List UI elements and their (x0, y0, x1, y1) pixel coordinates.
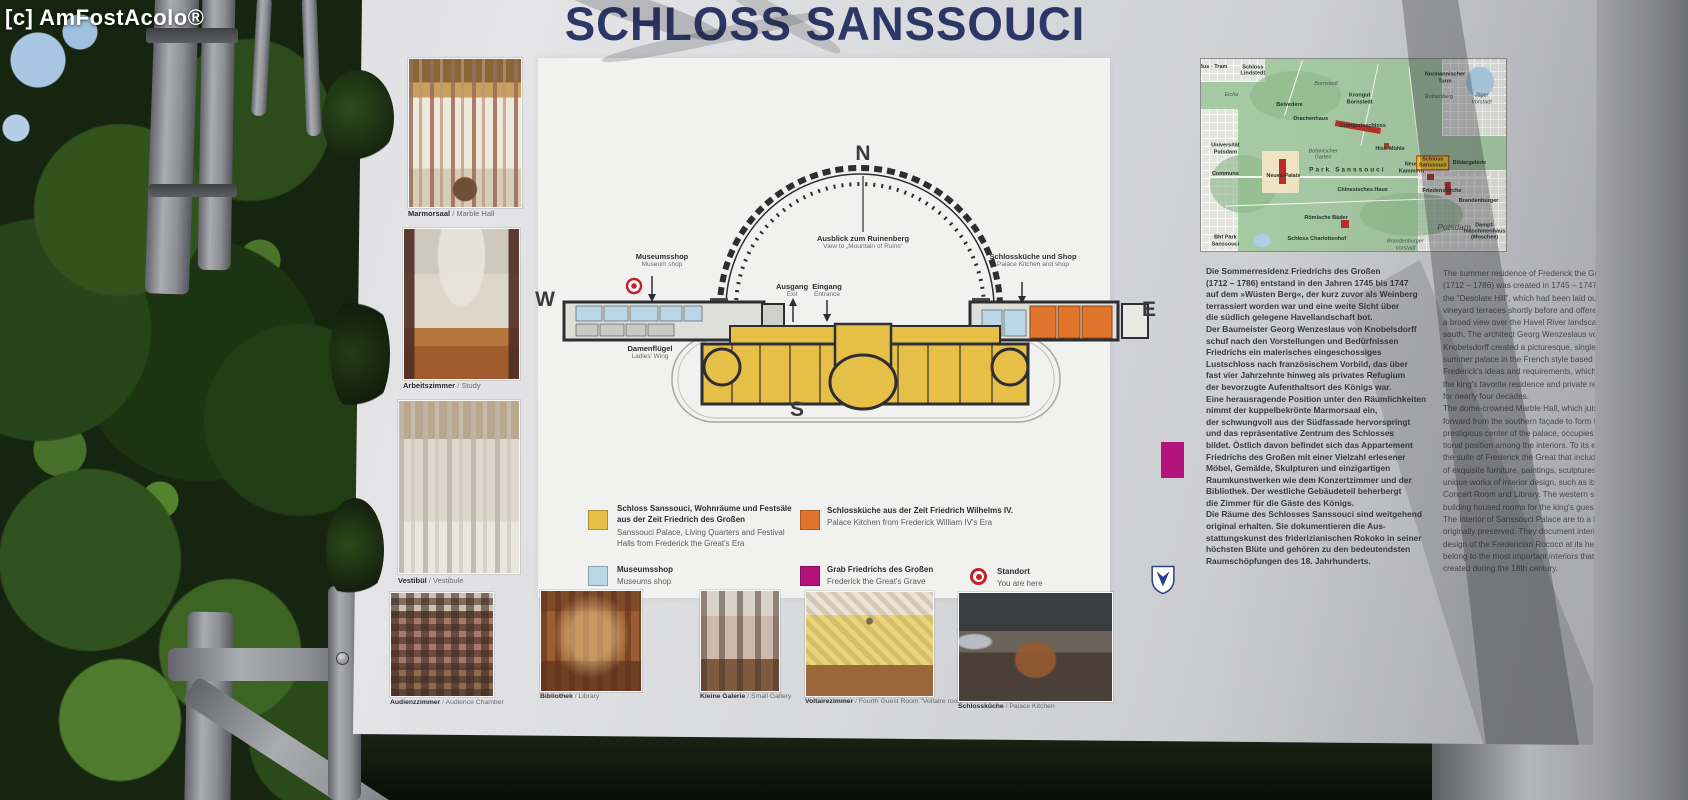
label-museum-shop: Museumsshop Museum shop (592, 252, 732, 268)
map-label: Drachenhaus (1293, 115, 1328, 121)
map-label: Dampf- maschinenhaus (Moschee) (1464, 222, 1506, 241)
watermark: [c] AmFostAcolo® (5, 5, 204, 31)
map-label: Chinesisches Haus (1337, 186, 1387, 192)
park-map: Bus · Tram Schloss Lindstedt Eiche Borns… (1200, 58, 1507, 252)
compass-south: S (782, 398, 812, 422)
map-label: Bhf Park Sanssouci (1212, 235, 1240, 248)
floor-plan: N S W E Ausblick zum Ruinenberg View to … (530, 140, 1170, 490)
legend-kitchen-de: Schlossküche aus der Zeit Friedrich Wilh… (827, 505, 1013, 516)
caption-audienzzimmer: Audienzzimmer / Audience Chamber (390, 699, 504, 706)
label-view-to-ruinenberg: Ausblick zum Ruinenberg View to „Mountai… (763, 234, 963, 250)
compass-west: W (530, 288, 560, 312)
map-label: Bornstedt (1314, 81, 1338, 87)
foliage-edge (322, 70, 394, 166)
map-label: Römische Bäder (1304, 215, 1347, 221)
map-label: Belvedere (1276, 102, 1302, 108)
caption-marmorsaal: Marmorsaal / Marble Hall (408, 209, 494, 218)
foliage-edge (326, 498, 384, 602)
grave-marker (1161, 442, 1184, 478)
photo-vestibuel (398, 400, 520, 574)
legend-swatch-shop (588, 566, 608, 586)
map-label: Eiche (1225, 92, 1239, 98)
map-label: Bus · Tram (1200, 64, 1227, 70)
photo-schlosskueche (958, 592, 1113, 702)
map-label: Schloss Lindstedt (1240, 64, 1265, 77)
map-main-avenue (1210, 176, 1491, 178)
map-label: Communs (1212, 171, 1239, 177)
map-label: Botanischer Garten (1308, 149, 1337, 162)
legend-palace-de: Schloss Sanssouci, Wohnräume und Festsäl… (617, 503, 792, 525)
board-title: SCHLOSS SANSSOUCI (547, 0, 1104, 51)
map-label: Krongut Bornstedt (1347, 93, 1373, 106)
map-label-park-sanssouci: Park Sanssouci (1309, 167, 1385, 174)
pole-clamp (149, 184, 237, 197)
legend-swatch-kitchen (800, 510, 820, 530)
map-legend: Schloss Sanssouci, Wohnräume und Festsäl… (585, 500, 1110, 600)
photo-arbeitszimmer (403, 228, 520, 380)
map-label: Bildergalerie (1453, 160, 1486, 166)
info-text-german: Die Sommerresidenz Friedrichs des Großen… (1206, 266, 1426, 567)
map-label: Neues Palais (1266, 173, 1300, 179)
label-palace-kitchen: Schlossküche und Shop Palace Kitchen and… (953, 252, 1113, 268)
map-label: Ruinenberg (1425, 94, 1453, 100)
floor-plan-drawing (530, 140, 1170, 490)
compass-north: N (848, 142, 878, 166)
legend-palace-en: Sanssouci Palace, Living Quarters and Fe… (617, 527, 785, 549)
map-label: Schloss Charlottenhof (1288, 236, 1347, 242)
legend-grave-de: Grab Friedrichs des Großen (827, 564, 933, 575)
photo-voltairezimmer (805, 591, 934, 697)
legend-swatch-palace (588, 510, 608, 530)
legend-swatch-grave (800, 566, 820, 586)
spsg-logo (1150, 564, 1176, 596)
caption-arbeitszimmer: Arbeitszimmer / Study (403, 381, 481, 390)
map-label: Jäger Vorstadt (1471, 93, 1491, 106)
foliage-edge (330, 292, 390, 416)
caption-bibliothek: Bibliothek / Library (540, 693, 599, 700)
legend-standort-en: You are here (997, 578, 1043, 589)
map-label: Orangerieschloss (1339, 123, 1385, 129)
legend-shop-de: Museumsshop (617, 564, 673, 575)
map-building-sanssouci (1427, 174, 1435, 180)
photo-bibliothek (540, 590, 642, 692)
map-label-schloss-sanssouci-highlight: Schloss Sanssouci (1416, 155, 1450, 170)
map-pond (1253, 234, 1271, 247)
map-label: Friedenskirche (1422, 188, 1461, 194)
photo-marmorsaal (408, 58, 522, 208)
caption-kleine-galerie: Kleine Galerie / Small Gallery (700, 693, 791, 700)
caption-voltairezimmer: Voltairezimmer / Fourth Guest Room "Volt… (805, 698, 965, 705)
legend-grave-en: Frederick the Great's Grave (827, 576, 925, 587)
photo-audienzzimmer (390, 592, 494, 697)
label-entrance: Eingang Entrance (792, 282, 862, 298)
map-label: Brandenburger Vorstadt (1387, 239, 1424, 252)
map-building-neues-palais (1279, 159, 1287, 184)
legend-standort-de: Standort (997, 566, 1030, 577)
caption-schlosskueche: Schlossküche / Palace Kitchen (958, 703, 1055, 710)
photo-of-information-board: SCHLOSS SANSSOUCI Marmorsaal / Marble Ha… (0, 0, 1688, 800)
map-label: Hist. Mühle (1375, 146, 1404, 152)
label-ladies-wing: Damenflügel Ladies' Wing (590, 344, 710, 360)
photo-kleine-galerie (700, 590, 780, 692)
screw (336, 652, 349, 665)
caption-vestibuel: Vestibül / Vestibule (398, 576, 464, 585)
map-label: Universität Potsdam (1211, 143, 1239, 156)
map-label: Normannischer Turm (1425, 72, 1465, 85)
compass-east: E (1134, 298, 1164, 322)
legend-kitchen-en: Palace Kitchen from Frederick William IV… (827, 517, 992, 528)
map-label: Brandenburger (1459, 198, 1499, 204)
legend-shop-en: Museums shop (617, 576, 671, 587)
you-are-here-icon (970, 568, 987, 585)
